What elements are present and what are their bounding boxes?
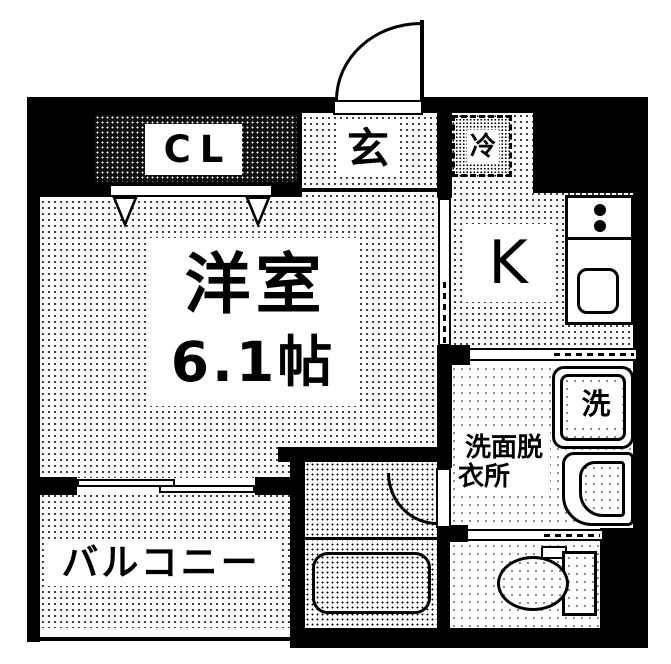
kitchen-label: K — [488, 233, 527, 293]
wall-mid-upper — [437, 97, 452, 198]
kitchen-sink — [577, 268, 619, 314]
refrigerator-label-box: 冷 — [467, 130, 499, 164]
washing-machine-label-box: 洗 — [574, 384, 618, 424]
balcony-label-box: バルコニー — [44, 539, 278, 586]
entrance-door-threshold — [333, 100, 423, 115]
balcony-edge-line — [40, 637, 290, 641]
kitchen-washroom-wall — [450, 345, 470, 365]
counter-divider-line — [568, 237, 631, 240]
closet-label: CL — [164, 131, 233, 168]
wall-left — [27, 97, 40, 642]
stove-burner-icon — [594, 220, 606, 232]
closet-front-bar — [109, 184, 273, 197]
washroom-label-line2: 衣所 — [458, 463, 510, 492]
entrance-door-arc-icon — [335, 22, 421, 100]
washing-machine-label: 洗 — [581, 390, 610, 419]
washing-machine-pan: 洗 — [552, 366, 634, 449]
window-wall-left — [27, 477, 77, 495]
stove-burner-icon — [594, 204, 606, 216]
wall-bottom — [292, 628, 648, 648]
wall-mid-lower — [437, 527, 450, 648]
closet-label-box: CL — [145, 124, 242, 175]
kitchen-washroom-sliding-door — [468, 348, 638, 361]
washroom-label-line1: 洗面脱 — [465, 434, 543, 463]
wall-right-upper — [633, 97, 648, 530]
entrance-step-line — [302, 188, 437, 192]
refrigerator-space: 冷 — [452, 115, 512, 177]
washbasin-counter — [562, 452, 634, 526]
balcony-label: バルコニー — [61, 544, 260, 581]
window-wall-right — [255, 477, 305, 495]
sliding-door-track — [554, 353, 634, 356]
balcony-sliding-window-pane — [159, 485, 255, 493]
bathroom-door-panel — [436, 468, 451, 528]
floor-plan: CL 玄 冷 K 洗面脱 衣所 洗 — [0, 0, 671, 664]
entrance-label-box: 玄 — [338, 122, 398, 176]
western-room-label-box: 洋室 6.1帖 — [148, 238, 358, 406]
wall-corner-shaft — [533, 97, 648, 193]
toilet-bowl — [497, 556, 569, 611]
kitchen-label-box: K — [464, 224, 552, 302]
refrigerator-label: 冷 — [470, 134, 496, 160]
washbasin-bowl — [579, 461, 625, 517]
room-kitchen-sliding-door — [438, 198, 451, 346]
sliding-door-track — [544, 534, 600, 537]
washroom-label-box: 洗面脱 衣所 — [458, 432, 550, 494]
western-room-size: 6.1帖 — [171, 325, 335, 399]
sliding-door-track — [443, 282, 446, 344]
washroom-toilet-sliding-door — [466, 529, 604, 541]
western-room-name: 洋室 — [185, 245, 327, 325]
bathtub — [312, 552, 431, 614]
bathroom-divider-line — [305, 537, 437, 540]
kitchen-counter — [565, 195, 634, 325]
entrance-label: 玄 — [347, 128, 389, 170]
